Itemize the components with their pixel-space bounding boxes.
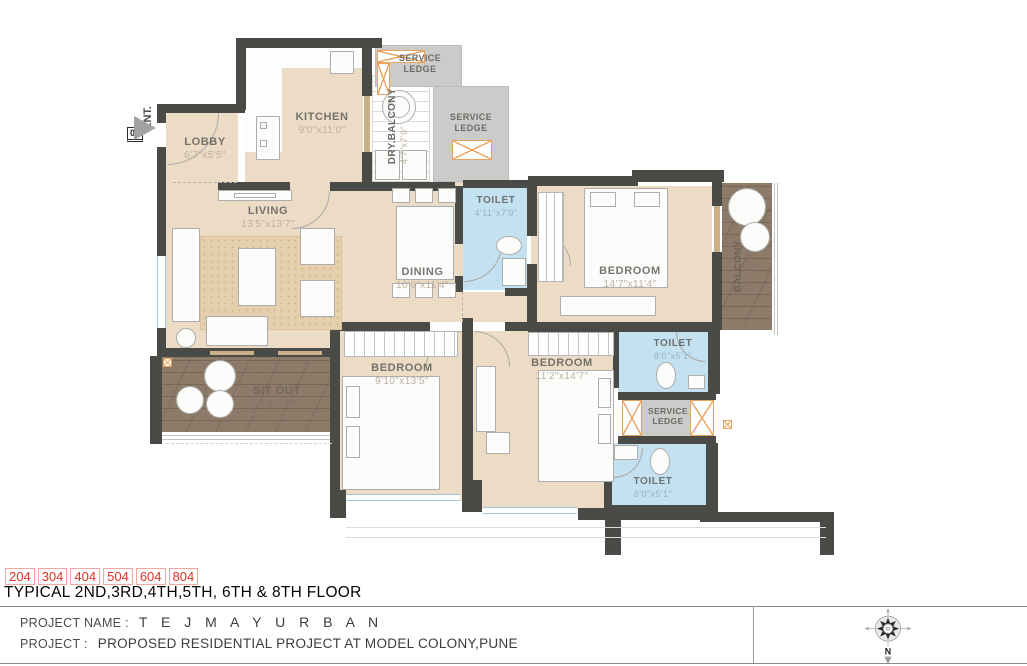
opening-dashed-line (462, 292, 463, 322)
wall (820, 512, 834, 555)
sliding-door (714, 206, 720, 252)
wall (578, 508, 718, 520)
unit-number: 304 (38, 568, 68, 585)
pillow-symbol (590, 192, 616, 207)
column-marker (163, 358, 172, 367)
wardrobe-symbol (538, 192, 564, 282)
opening-dashed-line (166, 443, 332, 444)
compass-rose-icon: N (856, 608, 920, 664)
hob-burner (260, 140, 267, 147)
desk-symbol (476, 366, 496, 432)
elevation-line (346, 527, 826, 528)
wc-symbol (656, 362, 676, 389)
patio-chair-symbol (206, 390, 234, 418)
unit-number: 504 (103, 568, 133, 585)
coffee-table-symbol (238, 248, 276, 306)
wall (618, 436, 716, 444)
floor-plan-sheet: LOBBY 6'7"x5'5" KITCHEN 9'0"x11'0" DRY.B… (0, 0, 1027, 666)
wall (528, 322, 718, 332)
unit-numbers-row: 204 304 404 504 604 804 (5, 568, 198, 585)
wall (712, 182, 722, 206)
pillow-symbol (346, 386, 360, 418)
wall (330, 490, 346, 518)
room-label-toilet: TOILET 8'0"x5'1" (618, 476, 688, 500)
armchair-symbol (300, 280, 335, 317)
unit-number: 204 (5, 568, 35, 585)
project-desc-row: PROJECT :PROPOSED RESIDENTIAL PROJECT AT… (20, 636, 518, 651)
basin-symbol (502, 258, 526, 286)
room-label-sit-out: SIT OUT 13'5"x4'5" (232, 385, 322, 411)
patio-chair-symbol (176, 386, 204, 414)
wall (157, 113, 166, 123)
tv-symbol (234, 193, 276, 198)
wc-symbol (650, 448, 670, 475)
project-label: PROJECT : (20, 637, 88, 651)
wall (330, 322, 430, 331)
chair-symbol (415, 188, 433, 203)
window (346, 494, 460, 501)
desk-symbol (560, 296, 656, 316)
room-label-dry-balcony: DRY.BALCONY4'7"x7'9" (384, 88, 414, 178)
sit-out-railing (162, 432, 332, 443)
pillow-symbol (346, 426, 360, 458)
duct-hatch (622, 400, 642, 436)
room-label-lobby: LOBBY 6'7"x5'5" (172, 136, 238, 162)
daybed-symbol (206, 316, 268, 346)
window (483, 507, 577, 514)
wall (605, 517, 621, 555)
project-name-label: PROJECT NAME : (20, 616, 129, 630)
room-label-bedroom: BEDROOM 11'2"x14'7" (512, 357, 612, 383)
wall (618, 392, 716, 400)
pillow-symbol (634, 192, 660, 207)
wall (455, 186, 463, 244)
unit-number: 604 (136, 568, 166, 585)
wall (236, 48, 246, 110)
stool-symbol (486, 432, 510, 454)
room-label-kitchen: KITCHEN 9'0"x11'0" (272, 111, 372, 137)
floor-title: TYPICAL 2ND,3RD,4TH,5TH, 6TH & 8TH FLOOR (4, 584, 362, 602)
window (157, 256, 166, 328)
basin-symbol (614, 445, 638, 460)
wall (712, 252, 722, 330)
sliding-door (278, 351, 322, 355)
chair-symbol (438, 188, 456, 203)
wall (528, 176, 638, 186)
room-label-balcony: BALCONY4'7"x11'4" (730, 240, 760, 320)
wall (505, 322, 529, 331)
wall (527, 264, 537, 322)
hob-burner (260, 122, 267, 129)
column-marker (723, 420, 732, 429)
chair-symbol (392, 188, 410, 203)
wall (463, 180, 533, 188)
unit-number: 804 (169, 568, 199, 585)
project-name-row: PROJECT NAME :T E J M A Y U R B A N (20, 614, 383, 630)
room-label-toilet: TOILET 4'11"x7'9" (464, 195, 528, 219)
sink-symbol (330, 51, 354, 74)
room-label-dining: DINING 10'6"x11'4" (375, 266, 470, 292)
pillow-symbol (598, 414, 611, 444)
wall (632, 170, 724, 182)
basin-symbol (688, 375, 705, 389)
unit-number: 404 (70, 568, 100, 585)
wall (236, 38, 382, 48)
opening-dashed-line (173, 182, 237, 183)
wardrobe-symbol (344, 331, 458, 357)
floor-lamp-symbol (176, 328, 196, 348)
project-desc-value: PROPOSED RESIDENTIAL PROJECT AT MODEL CO… (98, 636, 518, 651)
title-block-divider (753, 607, 754, 663)
wall (150, 424, 162, 444)
sofa-symbol (172, 228, 200, 322)
wall (462, 480, 482, 512)
duct-hatch (452, 140, 492, 160)
project-name-value: T E J M A Y U R B A N (139, 614, 383, 630)
armchair-symbol (300, 228, 335, 265)
title-block: PROJECT NAME :T E J M A Y U R B A N PROJ… (0, 606, 1027, 664)
wall (527, 184, 537, 236)
room-label-toilet: TOILET 8'0"x5'1" (638, 338, 708, 362)
service-ledge (433, 86, 509, 182)
wall (700, 512, 834, 522)
wardrobe-symbol (528, 332, 614, 356)
wall (362, 152, 372, 182)
balcony-railing (772, 183, 780, 335)
wall (362, 38, 372, 96)
room-label-service-ledge: SERVICE LEDGE (385, 53, 455, 75)
room-label-service-ledge: SERVICE LEDGE (438, 112, 504, 134)
entrance-arrow-icon (134, 116, 156, 140)
sliding-door (210, 351, 254, 355)
elevation-line (346, 537, 826, 538)
wall (157, 104, 245, 113)
wc-symbol (496, 236, 522, 255)
wall (708, 322, 720, 394)
wall (706, 443, 718, 509)
patio-table-symbol (728, 188, 766, 226)
room-label-living: LIVING 13'5"x13'7" (218, 205, 318, 231)
room-label-service-ledge: SERVICE LEDGE (640, 406, 696, 426)
room-label-bedroom: BEDROOM 9'10"x13'5" (352, 362, 452, 388)
room-label-bedroom: BEDROOM 14'7"x11'4" (580, 265, 680, 291)
compass-north-label: N (885, 646, 891, 656)
wall (150, 356, 162, 434)
